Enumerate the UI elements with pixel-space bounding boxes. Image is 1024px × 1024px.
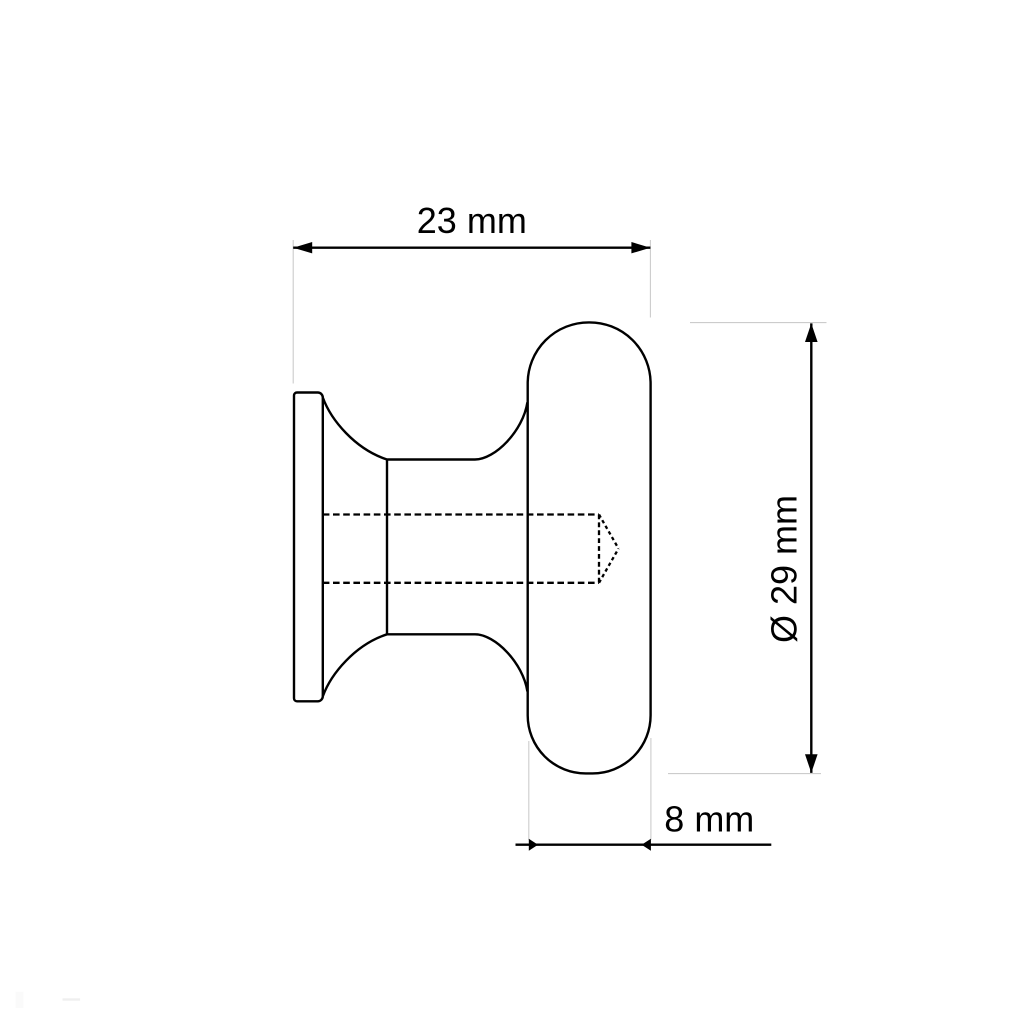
svg-text:8 mm: 8 mm [664,799,754,840]
svg-text:Ø 29 mm: Ø 29 mm [764,495,805,643]
svg-text:23 mm: 23 mm [417,200,527,241]
